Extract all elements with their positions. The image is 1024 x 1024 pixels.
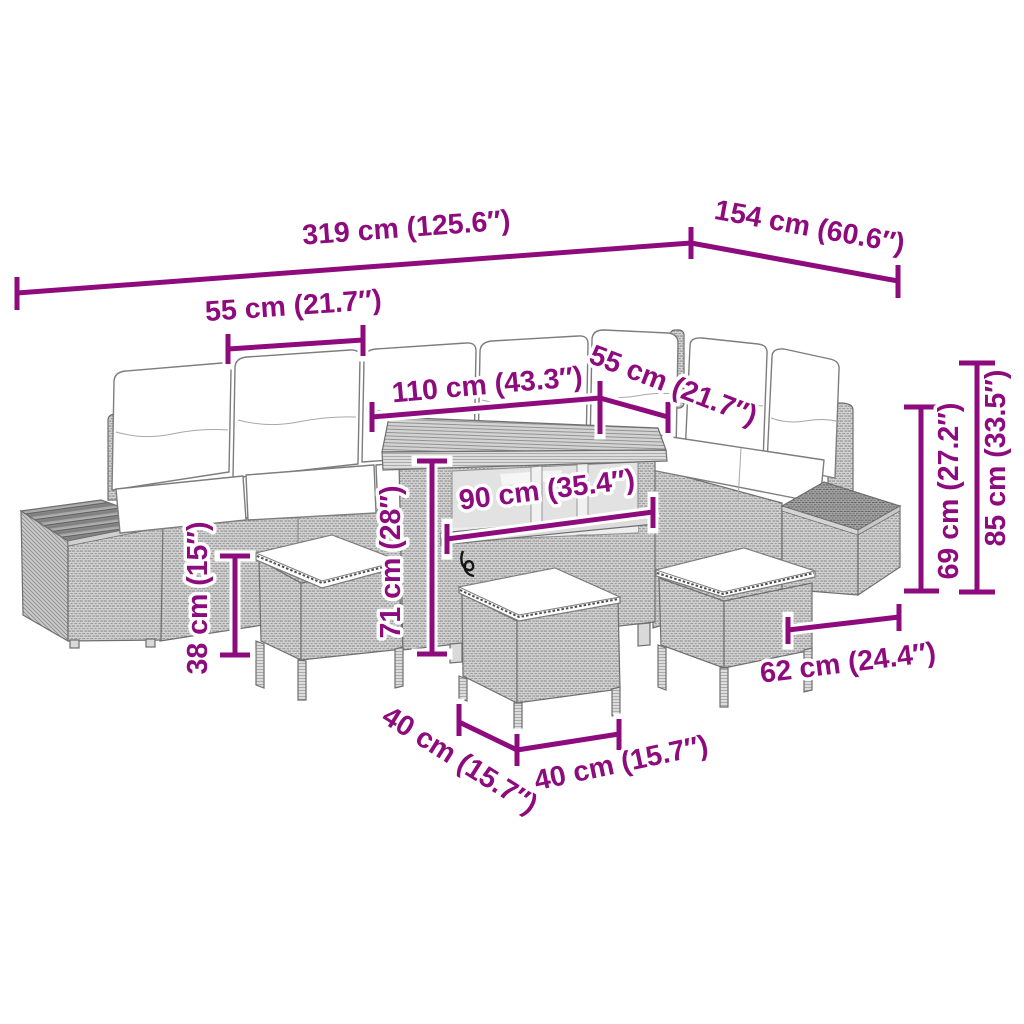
- svg-text:69 cm (27.2″): 69 cm (27.2″): [933, 403, 965, 580]
- svg-text:71 cm (28″): 71 cm (28″): [375, 485, 407, 638]
- svg-text:38 cm (15″): 38 cm (15″): [182, 521, 214, 674]
- svg-text:85 cm (33.5″): 85 cm (33.5″): [980, 370, 1012, 547]
